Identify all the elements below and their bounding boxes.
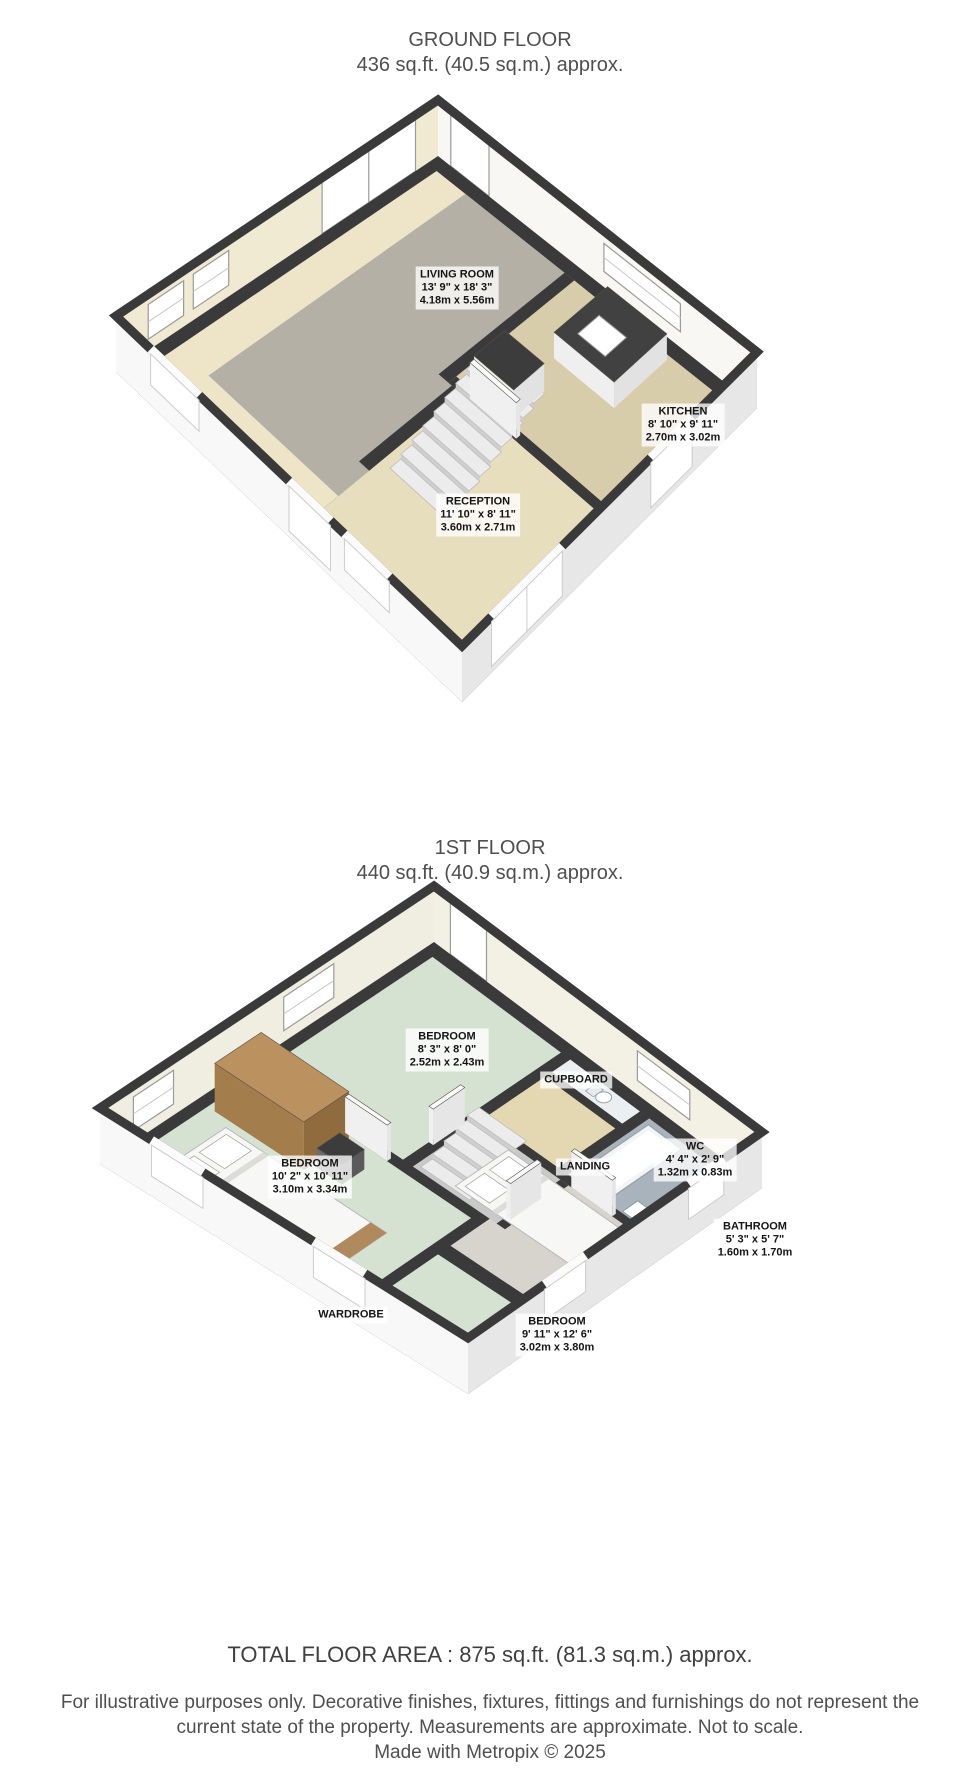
room-label-bedroom-left: BEDROOM 10' 2" x 10' 11" 3.10m x 3.34m <box>268 1156 352 1199</box>
room-name: KITCHEN <box>646 406 721 419</box>
room-dims-m: 3.10m x 3.34m <box>272 1184 348 1197</box>
room-label-wc: WC 4' 4" x 2' 9" 1.32m x 0.83m <box>654 1139 737 1182</box>
ground-floor-area-text: 436 sq.ft. (40.5 sq.m.) approx. <box>0 53 980 78</box>
room-dims-m: 2.52m x 2.43m <box>410 1057 485 1070</box>
room-dims-ft: 8' 3" x 8' 0" <box>410 1044 485 1057</box>
room-label-living-room: LIVING ROOM 13' 9" x 18' 3" 4.18m x 5.56… <box>416 267 499 310</box>
room-name: LANDING <box>560 1161 610 1174</box>
first-floor-area-text: 440 sq.ft. (40.9 sq.m.) approx. <box>0 861 980 886</box>
room-dims-m: 1.32m x 0.83m <box>658 1167 733 1180</box>
room-dims-ft: 11' 10" x 8' 11" <box>440 509 516 522</box>
room-label-bedroom-top: BEDROOM 8' 3" x 8' 0" 2.52m x 2.43m <box>406 1029 489 1072</box>
floorplan-page: GROUND FLOOR 436 sq.ft. (40.5 sq.m.) app… <box>0 0 980 1790</box>
ground-floor-title: GROUND FLOOR 436 sq.ft. (40.5 sq.m.) app… <box>0 28 980 78</box>
ground-floor-plan <box>116 100 757 702</box>
room-dims-m: 1.60m x 1.70m <box>718 1247 793 1260</box>
room-label-wardrobe: WARDROBE <box>314 1307 387 1324</box>
room-dims-m: 3.02m x 3.80m <box>520 1342 595 1355</box>
room-name: BEDROOM <box>410 1031 485 1044</box>
first-floor-title: 1ST FLOOR 440 sq.ft. (40.9 sq.m.) approx… <box>0 836 980 886</box>
room-name: CUPBOARD <box>544 1074 608 1087</box>
room-label-landing: LANDING <box>556 1159 614 1176</box>
room-label-reception: RECEPTION 11' 10" x 8' 11" 3.60m x 2.71m <box>436 494 520 537</box>
room-name: RECEPTION <box>440 496 516 509</box>
room-name: BEDROOM <box>520 1316 595 1329</box>
room-dims-ft: 4' 4" x 2' 9" <box>658 1154 733 1167</box>
room-dims-ft: 13' 9" x 18' 3" <box>420 282 495 295</box>
disclaimer-text: For illustrative purposes only. Decorati… <box>30 1690 950 1740</box>
room-dims-ft: 9' 11" x 12' 6" <box>520 1329 595 1342</box>
room-dims-m: 3.60m x 2.71m <box>440 522 516 535</box>
room-dims-ft: 8' 10" x 9' 11" <box>646 419 721 432</box>
first-floor-title-text: 1ST FLOOR <box>0 836 980 861</box>
room-name: LIVING ROOM <box>420 269 495 282</box>
room-label-kitchen: KITCHEN 8' 10" x 9' 11" 2.70m x 3.02m <box>642 404 725 447</box>
room-dims-m: 4.18m x 5.56m <box>420 295 495 308</box>
room-label-bathroom: BATHROOM 5' 3" x 5' 7" 1.60m x 1.70m <box>714 1219 797 1262</box>
ground-floor-title-text: GROUND FLOOR <box>0 28 980 53</box>
room-label-cupboard: CUPBOARD <box>540 1072 612 1089</box>
room-name: BATHROOM <box>718 1221 793 1234</box>
room-name: BEDROOM <box>272 1158 348 1171</box>
room-label-bedroom-bottom: BEDROOM 9' 11" x 12' 6" 3.02m x 3.80m <box>516 1314 599 1357</box>
room-dims-ft: 10' 2" x 10' 11" <box>272 1171 348 1184</box>
room-dims-ft: 5' 3" x 5' 7" <box>718 1234 793 1247</box>
room-name: WC <box>658 1141 733 1154</box>
metropix-credit: Made with Metropix © 2025 <box>0 1740 980 1765</box>
total-floor-area: TOTAL FLOOR AREA : 875 sq.ft. (81.3 sq.m… <box>0 1641 980 1669</box>
room-name: WARDROBE <box>318 1309 383 1322</box>
room-dims-m: 2.70m x 3.02m <box>646 432 721 445</box>
